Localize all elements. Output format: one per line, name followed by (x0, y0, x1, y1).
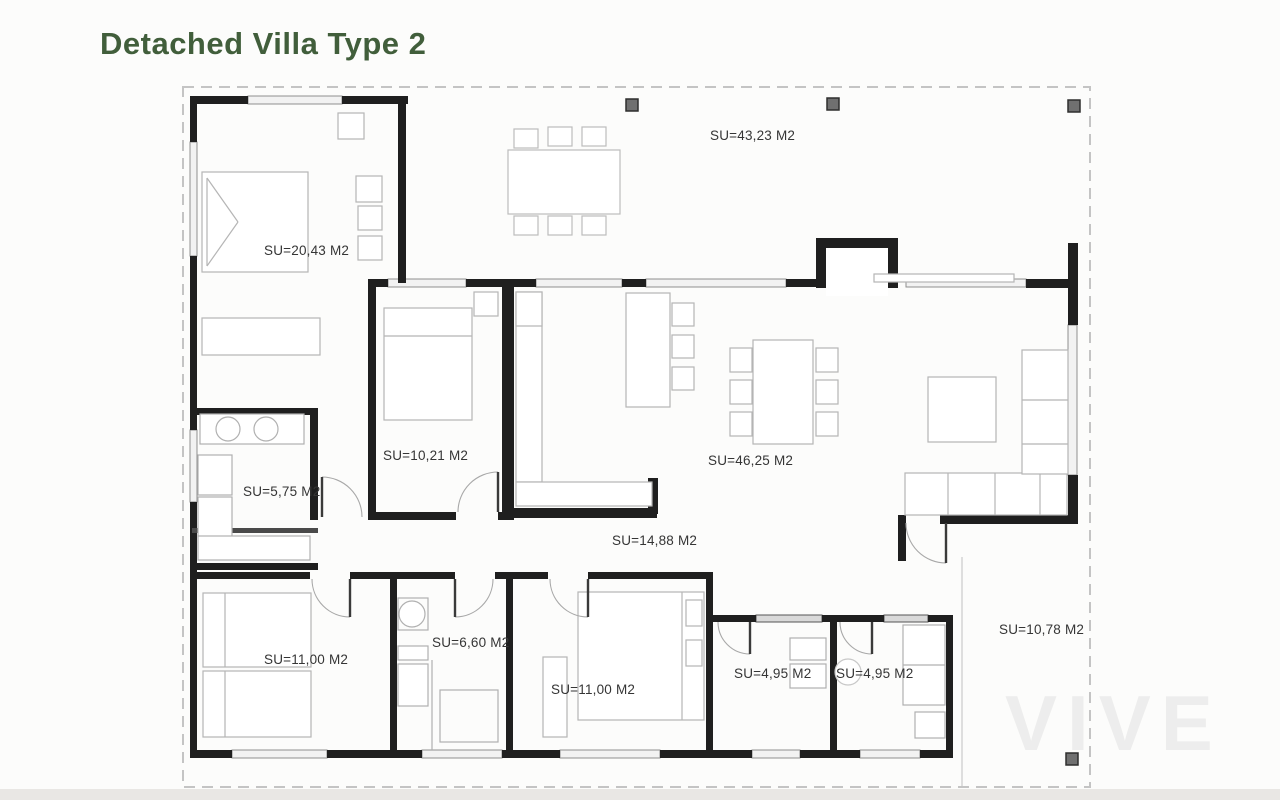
bathroom-3-4-fixtures (790, 625, 945, 738)
room-label-side-porch: SU=10,78 M2 (999, 622, 1084, 637)
room-label-bedroom-2: SU=10,21 M2 (383, 448, 468, 463)
room-label-bathroom-1: SU=5,75 M2 (243, 484, 320, 499)
living-dining-furniture (730, 274, 1068, 515)
room-label-master-bedroom: SU=20,43 M2 (264, 243, 349, 258)
floor-plan-page: Detached Villa Type 2 (0, 0, 1280, 800)
bedroom-2-furniture (384, 292, 498, 420)
room-label-bathroom-2: SU=6,60 M2 (432, 635, 509, 650)
watermark: VIVE (1005, 678, 1223, 769)
room-label-bedroom-4: SU=11,00 M2 (551, 682, 635, 697)
porch-dining-set (508, 127, 620, 235)
floor-plan: SU=20,43 M2 SU=43,23 M2 SU=10,21 M2 SU=5… (0, 0, 1280, 800)
room-label-front-porch: SU=43,23 M2 (710, 128, 795, 143)
bedroom-4-furniture (543, 592, 704, 737)
kitchen-furniture (516, 292, 694, 506)
bathroom-2-fixtures (398, 598, 498, 750)
room-label-living-dining: SU=46,25 M2 (708, 453, 793, 468)
room-label-bathroom-4: SU=4,95 M2 (836, 666, 913, 681)
room-label-hallway: SU=14,88 M2 (612, 533, 697, 548)
room-label-bedroom-3: SU=11,00 M2 (264, 652, 348, 667)
master-bedroom-furniture (202, 113, 382, 355)
room-label-bathroom-3: SU=4,95 M2 (734, 666, 811, 681)
photo-bottom-edge (0, 789, 1280, 800)
